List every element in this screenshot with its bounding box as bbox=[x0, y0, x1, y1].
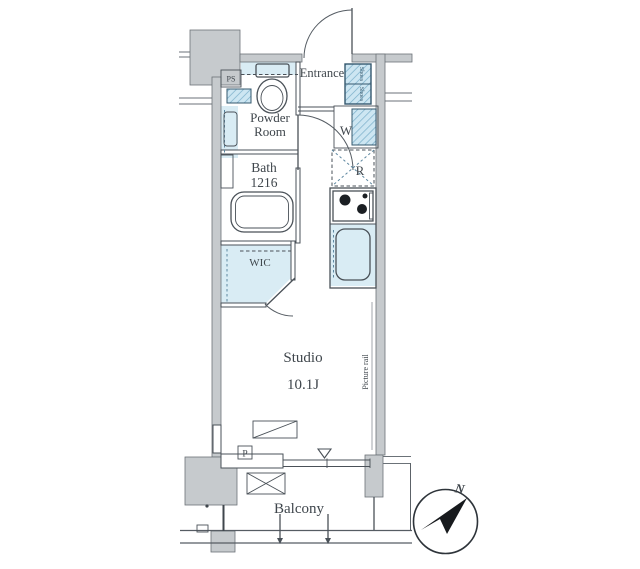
counter-unit bbox=[227, 89, 251, 103]
floor-plan-svg: N Entrance PS Powder Room Bath 1216 WIC … bbox=[0, 0, 640, 569]
toilet-seat bbox=[261, 86, 283, 111]
powder-bath-wall bbox=[221, 150, 298, 154]
shoe-box-icon bbox=[345, 64, 371, 104]
stove-burner-2 bbox=[357, 204, 367, 214]
compass: N bbox=[414, 480, 478, 553]
balcony-label: Balcony bbox=[274, 501, 324, 517]
stub-left-upper bbox=[179, 52, 190, 57]
entrance-label: Entrance bbox=[300, 66, 345, 80]
stove-burner-small bbox=[363, 194, 368, 199]
wic-label: WIC bbox=[249, 257, 270, 269]
bath-right-wall bbox=[296, 168, 300, 243]
entrance-step-line bbox=[298, 107, 334, 111]
evacuation-hatch-icon bbox=[247, 473, 285, 494]
washer-unit bbox=[352, 109, 376, 145]
shoes-label-upper: Shoes bbox=[358, 67, 364, 82]
bath-label-1: Bath bbox=[251, 160, 277, 175]
bathtub-icon bbox=[231, 192, 293, 232]
stub-right bbox=[385, 93, 412, 101]
counter-desk-icon bbox=[253, 421, 297, 438]
balcony-post bbox=[211, 531, 235, 552]
window-center-mark bbox=[318, 449, 331, 458]
studio-label-2: 10.1J bbox=[287, 377, 319, 393]
powder-room-label-1: Powder bbox=[250, 110, 290, 125]
bath-ledge bbox=[221, 155, 233, 188]
wic-door-swing bbox=[265, 304, 293, 316]
right-wall bbox=[376, 54, 385, 455]
wic-floor bbox=[221, 245, 291, 304]
studio-area bbox=[253, 302, 372, 450]
studio-label-1: Studio bbox=[283, 350, 322, 366]
desk-diagonal bbox=[253, 421, 297, 438]
fridge-label: R bbox=[356, 163, 365, 178]
right-wall-balcony bbox=[365, 455, 383, 497]
hatch-cross bbox=[247, 473, 285, 494]
sliding-window-icon bbox=[283, 449, 370, 468]
stove-icon bbox=[333, 191, 373, 221]
pole-label: P bbox=[242, 450, 247, 460]
balcony-divider bbox=[383, 457, 411, 464]
compass-north-label: N bbox=[453, 480, 466, 497]
top-wall-left bbox=[240, 54, 302, 62]
floor-plan-page: N Entrance PS Powder Room Bath 1216 WIC … bbox=[0, 0, 640, 569]
wic-bottom-wall bbox=[221, 303, 266, 307]
left-wall-niche bbox=[213, 425, 221, 453]
bath-wic-wall bbox=[221, 241, 295, 245]
powder-room-label-2: Room bbox=[254, 124, 286, 139]
bathtub-inner bbox=[236, 196, 289, 228]
stub-left-lower bbox=[179, 98, 212, 104]
window-lines bbox=[283, 460, 370, 467]
bath-label-2: 1216 bbox=[251, 175, 278, 190]
left-wall bbox=[212, 77, 221, 457]
stove-burner-1 bbox=[340, 195, 351, 206]
wic-right-wall bbox=[291, 241, 295, 280]
pipe-space-label: PS bbox=[227, 75, 236, 84]
bathtub-outer bbox=[231, 192, 293, 232]
picture-rail-label: Picture rail bbox=[361, 354, 370, 390]
drain-mark bbox=[205, 504, 208, 507]
railing-partitions bbox=[277, 514, 331, 544]
shoes-label-lower: Shoes bbox=[358, 87, 364, 102]
washer-label: W bbox=[340, 123, 353, 138]
entrance-door-swing bbox=[304, 10, 352, 58]
